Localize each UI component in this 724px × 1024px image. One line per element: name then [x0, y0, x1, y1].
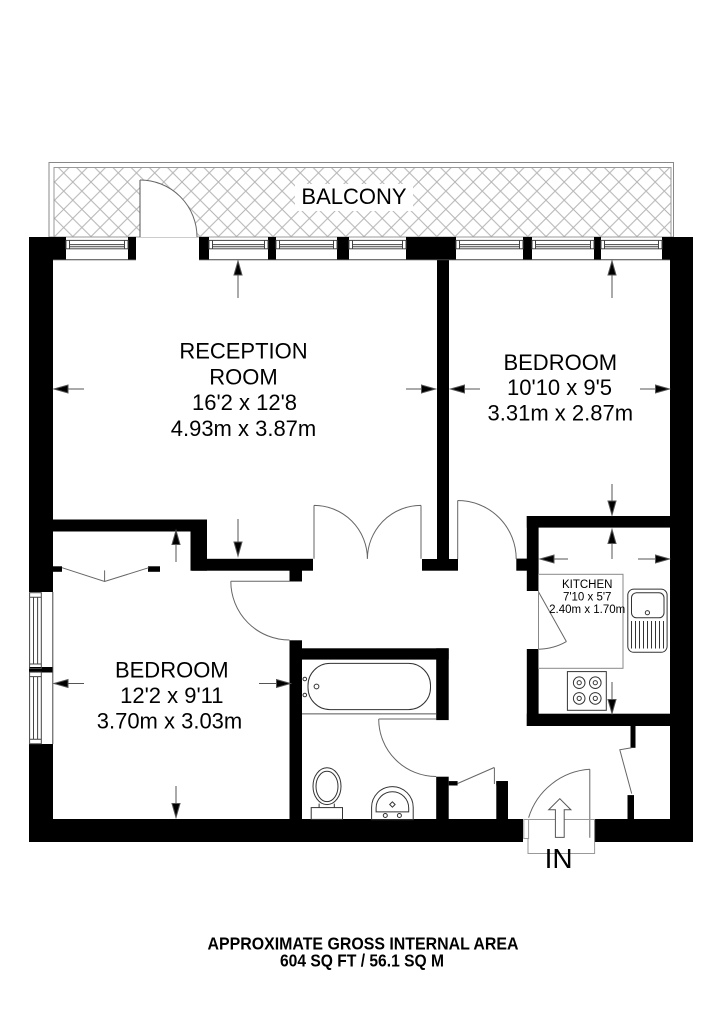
svg-text:16'2 x 12'8: 16'2 x 12'8: [192, 390, 297, 415]
svg-text:BEDROOM: BEDROOM: [115, 657, 229, 682]
svg-text:10'10 x 9'5: 10'10 x 9'5: [507, 375, 612, 400]
svg-text:604 SQ FT / 56.1 SQ M: 604 SQ FT / 56.1 SQ M: [280, 951, 444, 971]
svg-text:RECEPTION: RECEPTION: [179, 339, 307, 364]
svg-text:7'10 x 5'7: 7'10 x 5'7: [563, 592, 612, 604]
svg-text:4.93m x 3.87m: 4.93m x 3.87m: [171, 416, 317, 441]
svg-text:KITCHEN: KITCHEN: [562, 579, 612, 591]
svg-text:12'2 x 9'11: 12'2 x 9'11: [120, 683, 223, 708]
svg-text:3.31m x 2.87m: 3.31m x 2.87m: [488, 401, 634, 426]
svg-text:ROOM: ROOM: [209, 364, 277, 389]
svg-text:2.40m x 1.70m: 2.40m x 1.70m: [549, 604, 625, 616]
svg-text:BALCONY: BALCONY: [301, 184, 406, 209]
svg-text:3.70m x 3.03m: 3.70m x 3.03m: [97, 708, 243, 733]
svg-text:BEDROOM: BEDROOM: [503, 350, 617, 375]
svg-text:IN: IN: [545, 843, 573, 874]
